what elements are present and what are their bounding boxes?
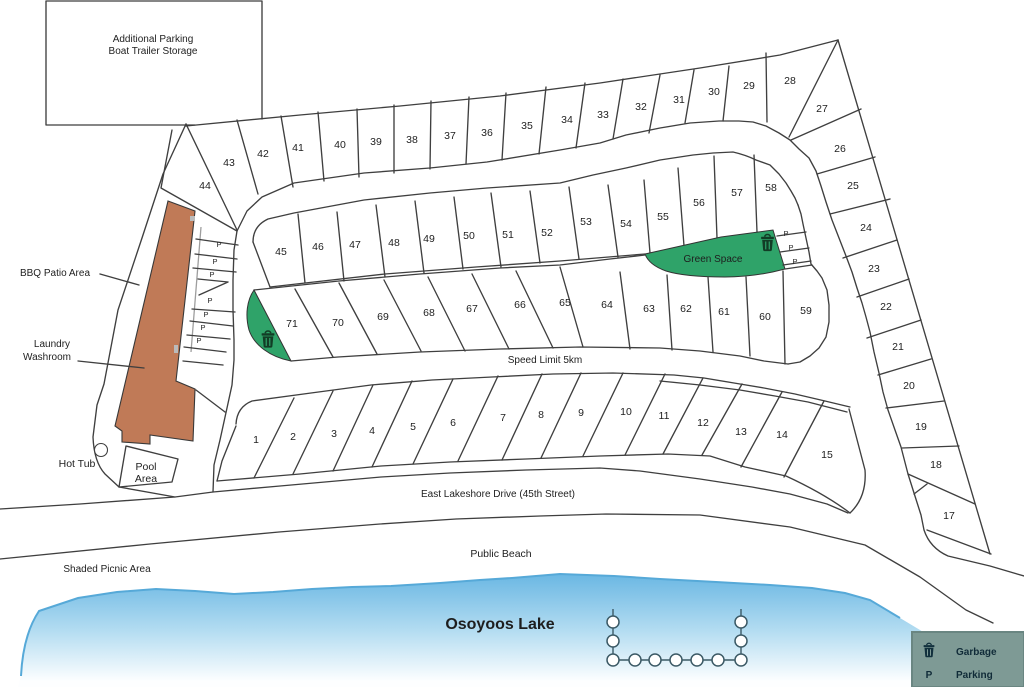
svg-text:42: 42 — [257, 148, 269, 160]
svg-text:P: P — [200, 323, 205, 332]
svg-text:P: P — [788, 243, 793, 252]
svg-text:67: 67 — [466, 303, 478, 315]
svg-text:6: 6 — [450, 417, 456, 429]
svg-text:BBQ Patio Area: BBQ Patio Area — [20, 268, 90, 279]
svg-text:35: 35 — [521, 120, 533, 132]
svg-text:12: 12 — [697, 417, 709, 429]
svg-text:36: 36 — [481, 127, 493, 139]
svg-text:44: 44 — [199, 180, 211, 192]
svg-text:P: P — [196, 336, 201, 345]
svg-text:69: 69 — [377, 311, 389, 323]
svg-text:32: 32 — [635, 101, 647, 113]
svg-text:23: 23 — [868, 263, 880, 275]
svg-text:63: 63 — [643, 303, 655, 315]
svg-text:29: 29 — [743, 80, 755, 92]
svg-text:34: 34 — [561, 114, 573, 126]
svg-text:Garbage: Garbage — [956, 647, 997, 658]
svg-text:57: 57 — [731, 187, 743, 199]
svg-text:5: 5 — [410, 421, 416, 433]
svg-text:48: 48 — [388, 237, 400, 249]
svg-text:19: 19 — [915, 421, 927, 433]
svg-text:Laundry: Laundry — [34, 339, 70, 350]
svg-text:24: 24 — [860, 222, 872, 234]
svg-text:22: 22 — [880, 301, 892, 313]
svg-text:41: 41 — [292, 142, 304, 154]
svg-text:27: 27 — [816, 103, 828, 115]
svg-text:53: 53 — [580, 216, 592, 228]
svg-text:54: 54 — [620, 218, 632, 230]
svg-text:Osoyoos Lake: Osoyoos Lake — [445, 616, 554, 633]
svg-text:38: 38 — [406, 134, 418, 146]
svg-text:Parking: Parking — [956, 670, 993, 681]
svg-text:66: 66 — [514, 299, 526, 311]
svg-text:P: P — [212, 257, 217, 266]
svg-text:51: 51 — [502, 229, 514, 241]
svg-text:Speed Limit 5km: Speed Limit 5km — [508, 355, 582, 366]
svg-text:64: 64 — [601, 299, 613, 311]
svg-text:50: 50 — [463, 230, 475, 242]
svg-text:33: 33 — [597, 109, 609, 121]
svg-text:31: 31 — [673, 94, 685, 106]
svg-text:59: 59 — [800, 305, 812, 317]
svg-text:P: P — [783, 229, 788, 238]
svg-text:4: 4 — [369, 425, 375, 437]
svg-text:Hot Tub: Hot Tub — [59, 458, 96, 470]
svg-text:P: P — [207, 296, 212, 305]
svg-text:47: 47 — [349, 239, 361, 251]
svg-text:Public Beach: Public Beach — [470, 548, 531, 560]
svg-text:21: 21 — [892, 341, 904, 353]
svg-text:20: 20 — [903, 380, 915, 392]
svg-text:52: 52 — [541, 227, 553, 239]
svg-text:65: 65 — [559, 297, 571, 309]
svg-text:East Lakeshore Drive (45th Str: East Lakeshore Drive (45th Street) — [421, 489, 575, 500]
svg-text:39: 39 — [370, 136, 382, 148]
svg-text:11: 11 — [659, 410, 670, 422]
svg-text:Washroom: Washroom — [23, 352, 71, 363]
svg-text:25: 25 — [847, 180, 859, 192]
svg-text:46: 46 — [312, 241, 324, 253]
svg-text:Area: Area — [135, 473, 157, 485]
svg-text:40: 40 — [334, 139, 346, 151]
svg-text:55: 55 — [657, 211, 669, 223]
svg-text:15: 15 — [821, 449, 833, 461]
svg-text:37: 37 — [444, 130, 456, 142]
svg-text:1: 1 — [253, 434, 259, 446]
svg-text:Green Space: Green Space — [684, 254, 743, 265]
svg-text:8: 8 — [538, 409, 544, 421]
svg-text:P: P — [209, 270, 214, 279]
svg-text:28: 28 — [784, 75, 796, 87]
svg-text:2: 2 — [290, 431, 296, 443]
svg-text:7: 7 — [500, 412, 506, 424]
svg-text:68: 68 — [423, 307, 435, 319]
svg-text:9: 9 — [578, 407, 584, 419]
svg-text:45: 45 — [275, 246, 287, 258]
svg-text:P: P — [203, 310, 208, 319]
svg-text:56: 56 — [693, 197, 705, 209]
svg-text:62: 62 — [680, 303, 692, 315]
svg-text:17: 17 — [943, 510, 955, 522]
svg-text:10: 10 — [620, 406, 632, 418]
svg-text:Additional Parking: Additional Parking — [113, 34, 194, 45]
svg-text:70: 70 — [332, 317, 344, 329]
svg-text:13: 13 — [735, 426, 747, 438]
svg-text:26: 26 — [834, 143, 846, 155]
svg-text:P: P — [216, 240, 221, 249]
svg-text:Boat Trailer Storage: Boat Trailer Storage — [109, 46, 198, 57]
svg-text:18: 18 — [930, 459, 942, 471]
svg-text:Shaded Picnic Area: Shaded Picnic Area — [63, 564, 151, 575]
svg-text:P: P — [926, 670, 933, 681]
svg-text:3: 3 — [331, 428, 337, 440]
svg-text:14: 14 — [776, 429, 788, 441]
svg-text:71: 71 — [286, 318, 298, 330]
svg-text:P: P — [792, 257, 797, 266]
svg-text:49: 49 — [423, 233, 435, 245]
svg-text:43: 43 — [223, 157, 235, 169]
svg-text:61: 61 — [718, 306, 730, 318]
svg-text:58: 58 — [765, 182, 777, 194]
svg-text:Pool: Pool — [135, 461, 156, 473]
svg-text:30: 30 — [708, 86, 720, 98]
svg-text:60: 60 — [759, 311, 771, 323]
